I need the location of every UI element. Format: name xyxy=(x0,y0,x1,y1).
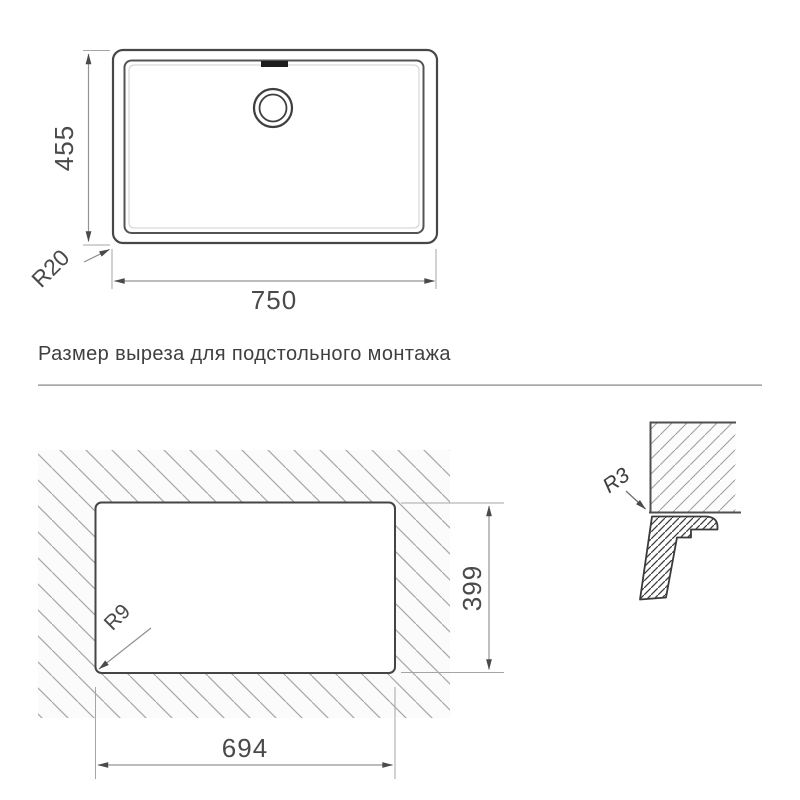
sink-corner-radius-callout: R20 xyxy=(26,244,109,292)
sink-outer-edge xyxy=(113,50,437,243)
leader-line xyxy=(84,250,110,263)
sink-rim-section xyxy=(640,517,718,600)
edge-radius-value: R3 xyxy=(599,463,634,497)
countertop-section-hatch xyxy=(651,423,736,513)
overflow-slot xyxy=(261,61,288,67)
leader-line xyxy=(626,491,646,509)
separator-line xyxy=(38,384,762,386)
cutout-width-value: 694 xyxy=(222,733,268,763)
dimension-sink-height: 455 xyxy=(49,51,110,246)
section-heading: Размер выреза для подстольного монтажа xyxy=(38,343,451,366)
cutout-rect xyxy=(96,503,396,674)
dimension-sink-width: 750 xyxy=(112,249,436,315)
sink-bowl-edge xyxy=(125,61,424,234)
technical-drawing: 455 750 R20 R9 xyxy=(0,0,800,800)
sink-height-value: 455 xyxy=(49,125,79,171)
edge-radius-callout: R3 xyxy=(599,463,646,509)
cutout-view: R9 399 694 xyxy=(38,450,504,779)
drain-inner-circle xyxy=(260,95,287,122)
diagram-canvas: 455 750 R20 R9 xyxy=(0,0,800,800)
cutout-height-value: 399 xyxy=(457,565,487,611)
sink-width-value: 750 xyxy=(251,285,297,315)
edge-section-detail: R3 xyxy=(599,423,741,600)
sink-corner-radius-value: R20 xyxy=(26,244,74,292)
sink-top-view: 455 750 R20 xyxy=(26,50,437,315)
